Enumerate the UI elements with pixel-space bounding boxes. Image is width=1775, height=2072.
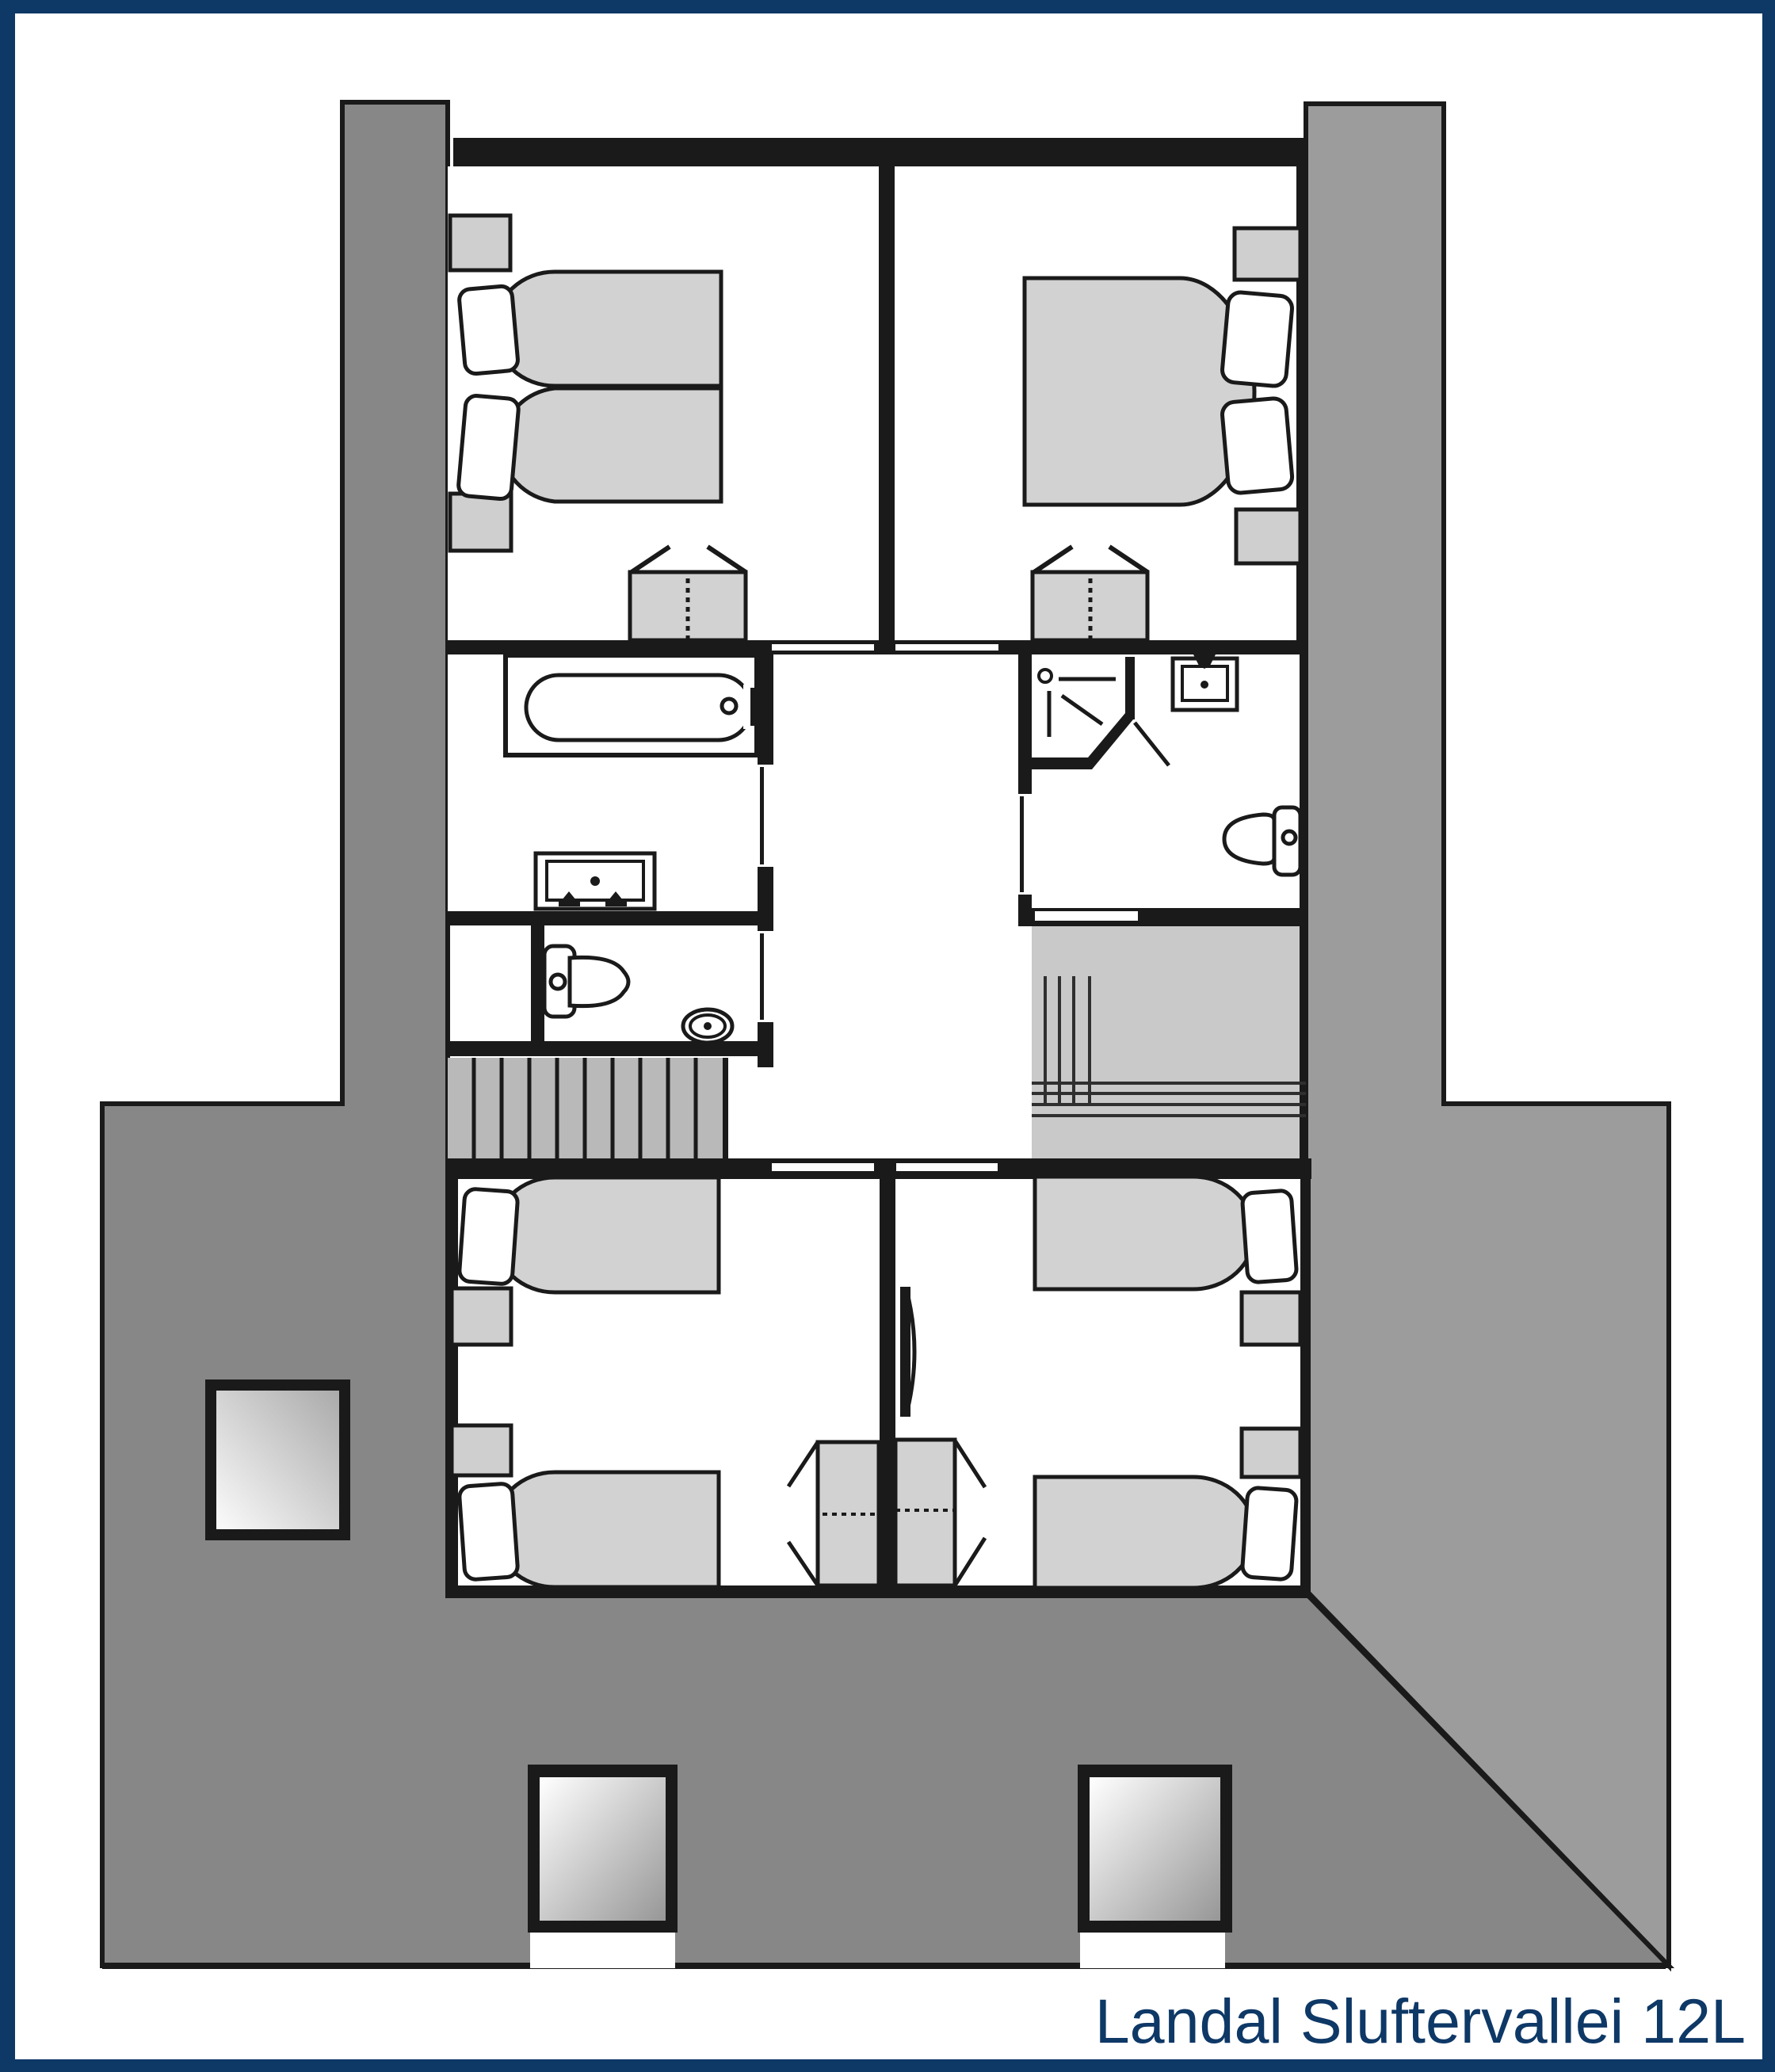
svg-text:Landal Sluftervallei 12L: Landal Sluftervallei 12L	[1095, 1986, 1746, 2056]
